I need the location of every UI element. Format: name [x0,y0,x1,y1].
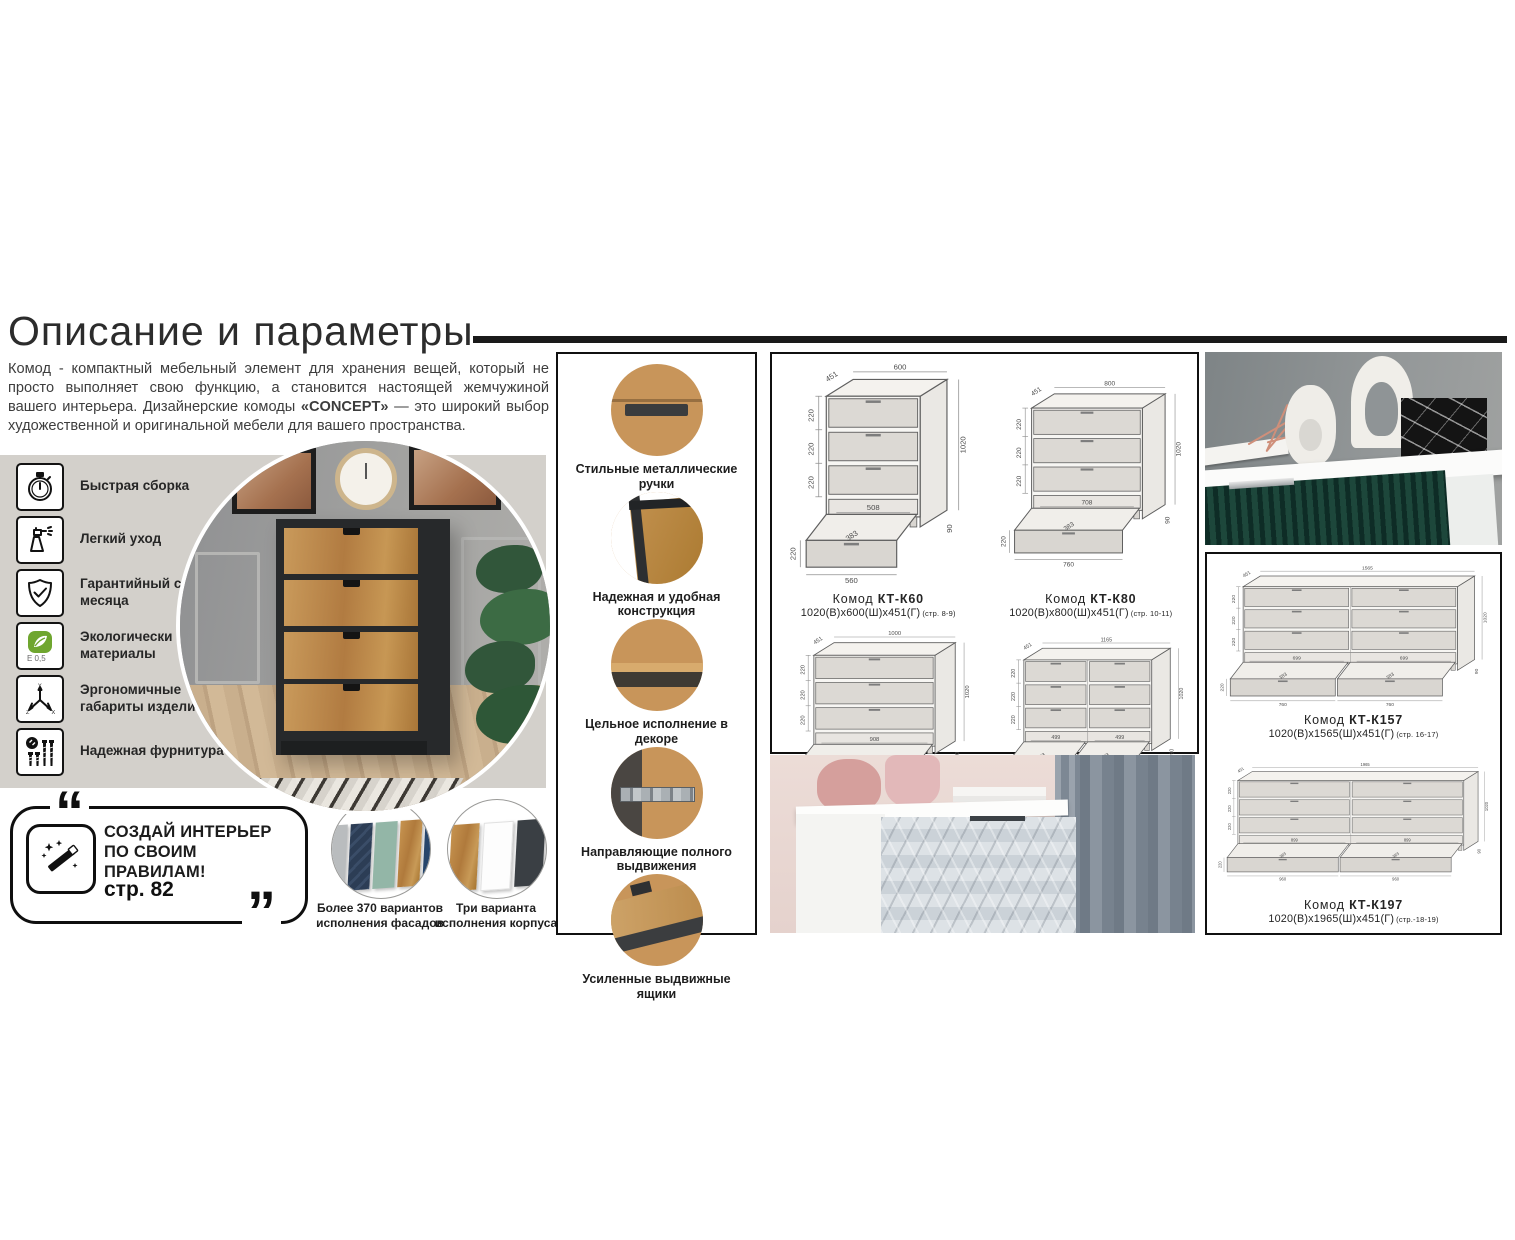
hexagon-drawer-front [881,817,1077,933]
product-dims: 1020(В)x600(Ш)x451(Г)(стр. 8-9) [801,607,956,619]
product-dims: 1020(В)x1565(Ш)x451(Г)(стр. 16-17) [1269,728,1439,740]
swatch-white [480,821,514,892]
svg-text:960: 960 [1279,876,1287,881]
close-quote-mark: ” [242,896,281,926]
svg-text:220: 220 [1227,822,1232,830]
svg-text:800: 800 [1104,380,1115,387]
callout-label: Цельное исполнение в декоре [567,717,747,747]
product-name: Комод КТ-К197 [1304,898,1403,912]
dresser-drawing: 1565451220220220102069969976038376038322… [1211,560,1496,713]
shield-check-icon [16,569,64,617]
dresser-drawer [284,580,418,626]
svg-text:220: 220 [1219,683,1225,691]
product-dims: 1020(В)x800(Ш)x451(Г)(стр. 10-11) [1009,607,1172,619]
drawer-slide-rail [620,787,696,802]
callout-photo-underside [611,874,703,966]
svg-text:90: 90 [1164,516,1171,524]
swatch-blue [422,818,431,886]
svg-text:451: 451 [824,369,840,384]
intro-paragraph: Комод - компактный мебельный элемент для… [8,360,549,436]
round-vase [1285,385,1335,466]
body-variants-label: Три варианта исполнения корпуса [421,901,571,931]
callout-handles: Стильные металлические ручки [562,364,751,492]
pink-glass-vase [885,755,940,807]
drawer-handle [343,528,360,534]
svg-text:220: 220 [800,716,806,726]
svg-text:220: 220 [1227,786,1232,794]
drawings-panel-right: 1565451220220220102069969976038376038322… [1205,552,1502,935]
xyz-axes-icon: YZX [16,675,64,723]
svg-text:451: 451 [1030,386,1043,398]
metal-handle [625,404,688,416]
drawings-panel: 600451220220220102050856038322090 Комод … [770,352,1199,754]
svg-text:1565: 1565 [1362,565,1373,571]
svg-text:X: X [52,710,56,715]
drawer-handle [343,580,360,586]
eco-leaf-icon: Е 0,5 [16,622,64,670]
title-rule [473,336,1507,343]
lifestyle-photo-white-dresser [770,755,1195,933]
wood-seam [611,399,703,402]
svg-text:Е 0,5: Е 0,5 [27,654,46,663]
product-card-kt-k80: 800451220220220102070876038322090 Комод … [985,354,1198,623]
callout-label: Направляющие полного выдвижения [567,845,747,875]
wall-molding [195,552,260,684]
svg-text:908: 908 [870,737,880,743]
dresser-plinth [281,741,427,755]
svg-text:220: 220 [788,547,797,560]
product-name: Комод КТ-К157 [1304,713,1403,727]
svg-text:220: 220 [1227,804,1232,812]
magic-wand-icon [26,824,96,894]
svg-text:220: 220 [1015,419,1022,430]
dresser-drawing: 800451220220220102070876038322090 [989,356,1194,592]
svg-text:220: 220 [1231,616,1237,624]
svg-text:220: 220 [1011,669,1017,678]
swatch-sage [372,821,397,889]
swatch-oak [448,823,479,891]
swatch-graphite [514,819,545,887]
swatch-gray [331,825,348,893]
svg-text:220: 220 [1217,860,1222,868]
callout-photo-handle [611,364,703,456]
product-name: Комод КТ-К60 [833,592,924,606]
callout-decor: Цельное исполнение в декоре [562,619,751,747]
callout-label: Усиленные выдвижные ящики [567,972,747,1002]
svg-text:Y: Y [38,683,42,689]
product-card-kt-k157: 1565451220220220102069969976038376038322… [1207,558,1500,744]
product-card-kt-k60: 600451220220220102050856038322090 Комод … [772,354,985,623]
svg-text:220: 220 [807,476,816,489]
svg-text:1020: 1020 [1179,688,1185,700]
promo-text: СОЗДАЙ ИНТЕРЬЕР ПО СВОИМ ПРАВИЛАМ! [104,822,292,882]
svg-text:760: 760 [1386,702,1394,708]
dresser-drawing: 1965451220220220102089989996038396038322… [1211,746,1496,899]
svg-text:451: 451 [1236,765,1245,773]
svg-text:220: 220 [1231,594,1237,602]
svg-text:220: 220 [1231,637,1237,645]
callout-photo-corner [611,492,703,584]
picture-frame [232,448,316,514]
svg-text:220: 220 [1000,536,1007,547]
callouts-column: Стильные металлические ручки Надежная и … [556,352,757,935]
drawer-handle [343,684,360,690]
product-name: Комод КТ-К80 [1045,592,1136,606]
svg-text:451: 451 [1022,642,1033,652]
svg-text:90: 90 [945,524,954,533]
callout-construction: Надежная и удобная конструкция [562,492,751,620]
product-pages: (стр. 16-17) [1396,730,1438,739]
svg-text:508: 508 [867,503,880,512]
spray-bottle-icon [16,516,64,564]
svg-text:220: 220 [807,443,816,456]
dresser-drawing: 600451220220220102050856038322090 [776,356,981,592]
svg-text:220: 220 [1011,692,1017,701]
svg-text:699: 699 [1293,655,1301,661]
product-pages: (стр. 10-11) [1131,609,1173,618]
callout-slides: Направляющие полного выдвижения [562,747,751,875]
body-variants-photo [447,799,547,899]
facade-swatches [331,818,431,892]
promo-page-ref: стр. 82 [104,878,174,902]
svg-text:220: 220 [1011,716,1017,725]
svg-text:451: 451 [813,636,824,646]
product-card-kt-k197: 1965451220220220102089989996038396038322… [1207,744,1500,930]
svg-text:560: 560 [845,576,858,585]
product-pages: (стр. 8-9) [922,609,955,618]
body-swatches [448,819,547,893]
svg-text:760: 760 [1279,702,1287,708]
svg-text:220: 220 [800,665,806,675]
page-title: Описание и параметры [8,308,474,355]
svg-text:708: 708 [1081,500,1092,507]
svg-text:1000: 1000 [888,631,901,637]
screws-icon [16,728,64,776]
swatch-oak [397,819,422,887]
drawer-handle [970,816,1025,821]
shelf-slot [611,672,703,687]
svg-text:960: 960 [1392,876,1400,881]
swatch-navy-striped [347,823,372,891]
svg-text:451: 451 [1242,569,1252,579]
callout-label: Стильные металлические ручки [567,462,747,492]
callout-drawers: Усиленные выдвижные ящики [562,874,751,1002]
rug [207,778,463,811]
product-dims: 1020(В)x1965(Ш)x451(Г)(стр.-18-19) [1268,913,1438,925]
shelf-edge [611,663,703,672]
svg-text:1165: 1165 [1100,638,1111,644]
dresser-drawer [284,528,418,574]
svg-text:90: 90 [1474,668,1480,674]
picture-frame [409,445,500,511]
svg-text:499: 499 [1115,735,1124,741]
dresser-side [796,814,885,933]
dresser-drawer [284,632,418,678]
callout-photo-slide [611,747,703,839]
hero-photo [176,437,554,815]
callout-label: Надежная и удобная конструкция [567,590,747,620]
svg-text:220: 220 [800,691,806,701]
svg-text:899: 899 [1291,837,1299,842]
svg-text:90: 90 [1477,848,1482,853]
svg-text:1965: 1965 [1361,762,1371,767]
svg-text:220: 220 [1015,447,1022,458]
catalog-page: Описание и параметры Комод - компактный … [0,0,1515,1240]
svg-text:220: 220 [807,409,816,422]
svg-text:1020: 1020 [1482,612,1488,623]
svg-text:220: 220 [1015,475,1022,486]
svg-text:1020: 1020 [1175,442,1182,457]
svg-text:1020: 1020 [1484,801,1489,811]
svg-text:899: 899 [1404,837,1412,842]
svg-text:1020: 1020 [965,686,971,699]
stopwatch-icon [16,463,64,511]
svg-text:600: 600 [894,362,907,371]
callout-photo-decor [611,619,703,711]
books-stack [953,787,1047,796]
curtain [1080,755,1195,933]
dresser-photo [276,519,450,756]
svg-text:699: 699 [1400,655,1408,661]
svg-text:760: 760 [1063,561,1074,568]
svg-text:499: 499 [1051,735,1060,741]
lifestyle-photo-green-dresser [1205,352,1502,545]
dresser-drawer [284,684,418,730]
product-pages: (стр.-18-19) [1396,915,1439,924]
drawer-handle [343,632,360,638]
intro-brand: «CONCEPT» [301,399,389,415]
svg-text:1020: 1020 [958,436,967,453]
